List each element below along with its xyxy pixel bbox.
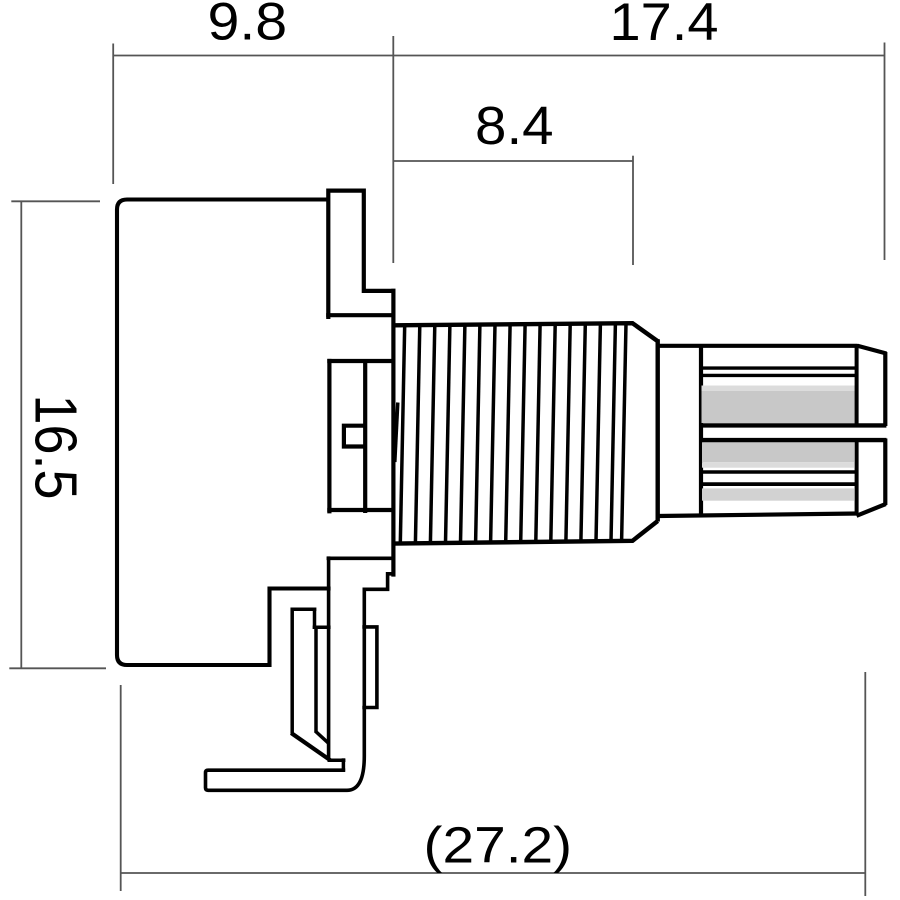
svg-text:8.4: 8.4 xyxy=(475,95,554,156)
svg-text:9.8: 9.8 xyxy=(207,0,287,51)
svg-text:16.5: 16.5 xyxy=(22,394,88,499)
svg-text:(27.2): (27.2) xyxy=(424,817,573,874)
svg-text:17.4: 17.4 xyxy=(610,0,719,52)
